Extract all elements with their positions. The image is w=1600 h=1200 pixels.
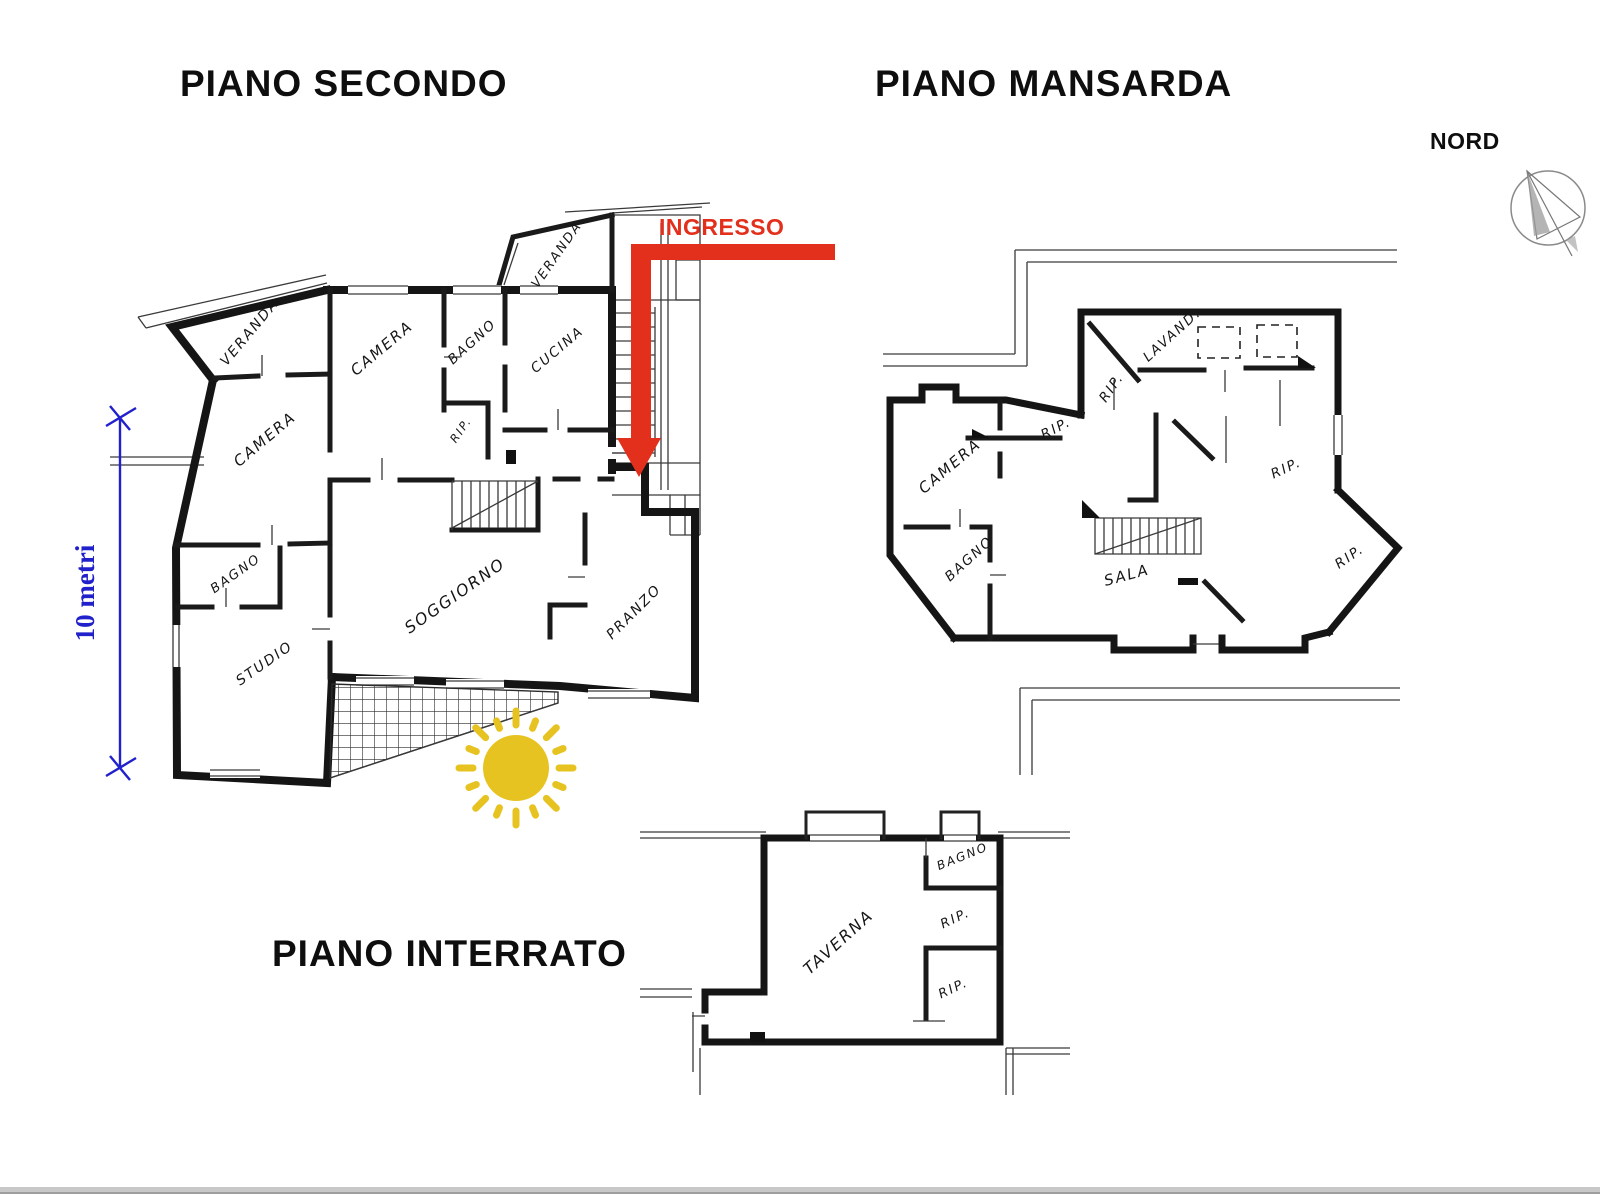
mansarda-interior-walls	[906, 324, 1316, 638]
north-compass-icon	[1482, 162, 1597, 272]
title-piano-secondo: PIANO SECONDO	[180, 63, 508, 105]
room-label-rip-right: RIP.	[1268, 454, 1304, 482]
bottom-divider-bar	[0, 1187, 1600, 1194]
scale-bar-line	[106, 406, 136, 780]
ingresso-arrow	[617, 244, 835, 477]
mansarda-windows	[1333, 415, 1343, 455]
room-label-studio: STUDIO	[233, 638, 296, 689]
room-label-taverna: TAVERNA	[799, 906, 877, 979]
sun-icon	[452, 702, 582, 832]
room-label-camera-left: CAMERA	[230, 408, 300, 471]
title-piano-mansarda: PIANO MANSARDA	[875, 63, 1232, 105]
scale-bar: 10 metri	[70, 400, 150, 785]
title-piano-interrato: PIANO INTERRATO	[272, 933, 627, 975]
scale-bar-label: 10 metri	[70, 544, 100, 641]
room-label-bagno-interrato: BAGNO	[935, 840, 990, 873]
interrato-context-lines	[640, 832, 1070, 1095]
room-label-bagno-top: BAGNO	[445, 316, 500, 368]
ingresso-label: INGRESSO	[659, 214, 784, 240]
sun-body	[483, 735, 549, 801]
room-label-rip-secondo: RIP.	[447, 414, 475, 445]
floor-plan-page: PIANO SECONDO PIANO MANSARDA PIANO INTER…	[0, 0, 1600, 1200]
secondo-stairwell	[612, 215, 700, 535]
mansarda-skylights	[1198, 325, 1297, 358]
room-label-cucina: CUCINA	[528, 323, 587, 376]
mansarda-stair	[1082, 500, 1201, 554]
room-label-rip-bottom-right: RIP.	[1332, 541, 1367, 572]
floor-plan-mansarda: RIP. LAVAND. CAMERA RIP. BAGNO SALA RIP.…	[860, 230, 1410, 780]
north-label: NORD	[1430, 128, 1500, 155]
room-label-rip1-interrato: RIP.	[938, 905, 972, 932]
room-label-pranzo: PRANZO	[603, 581, 664, 642]
secondo-door-marks	[226, 355, 628, 629]
room-label-sala: SALA	[1102, 560, 1151, 589]
secondo-inner-stair	[452, 481, 538, 530]
room-label-rip-top: RIP.	[1096, 370, 1127, 405]
room-label-rip2-interrato: RIP.	[936, 975, 970, 1002]
mansarda-outer-walls	[890, 312, 1398, 650]
room-label-bagno-left: BAGNO	[208, 551, 264, 596]
room-label-soggiorno: SOGGIORNO	[401, 554, 509, 638]
room-label-camera-mansarda: CAMERA	[915, 435, 985, 498]
floor-plan-interrato: TAVERNA BAGNO RIP. RIP.	[640, 780, 1070, 1100]
room-label-camera-top: CAMERA	[347, 317, 417, 380]
